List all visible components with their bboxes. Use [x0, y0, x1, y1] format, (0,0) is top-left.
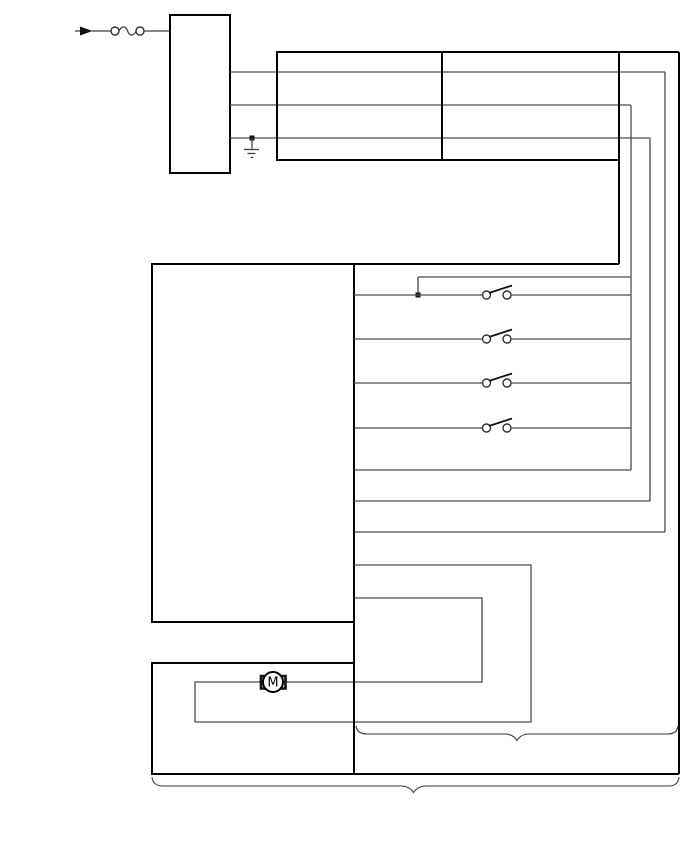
switch-1-contact-right [503, 291, 511, 299]
section-brace-bottom [152, 777, 679, 793]
motor-label: M [267, 676, 278, 691]
power-source-box [170, 15, 230, 173]
wiring-diagram-page: M [0, 0, 688, 852]
fuse-contact-left [111, 27, 119, 35]
section-brace-right [356, 726, 678, 741]
fuse-junction-box [277, 52, 619, 160]
switch-4-contact-right [503, 424, 511, 432]
power-input-arrow-icon [80, 27, 93, 36]
motor-module-box [152, 663, 354, 774]
fuse-contact-right [136, 27, 144, 35]
switch-3-contact-right [503, 379, 511, 387]
fuse-icon [119, 27, 136, 35]
switch-2-contact-right [503, 335, 511, 343]
motor-loop-wire [195, 565, 531, 722]
wiring-diagram-canvas: M [0, 0, 688, 852]
control-module-box [152, 264, 354, 622]
